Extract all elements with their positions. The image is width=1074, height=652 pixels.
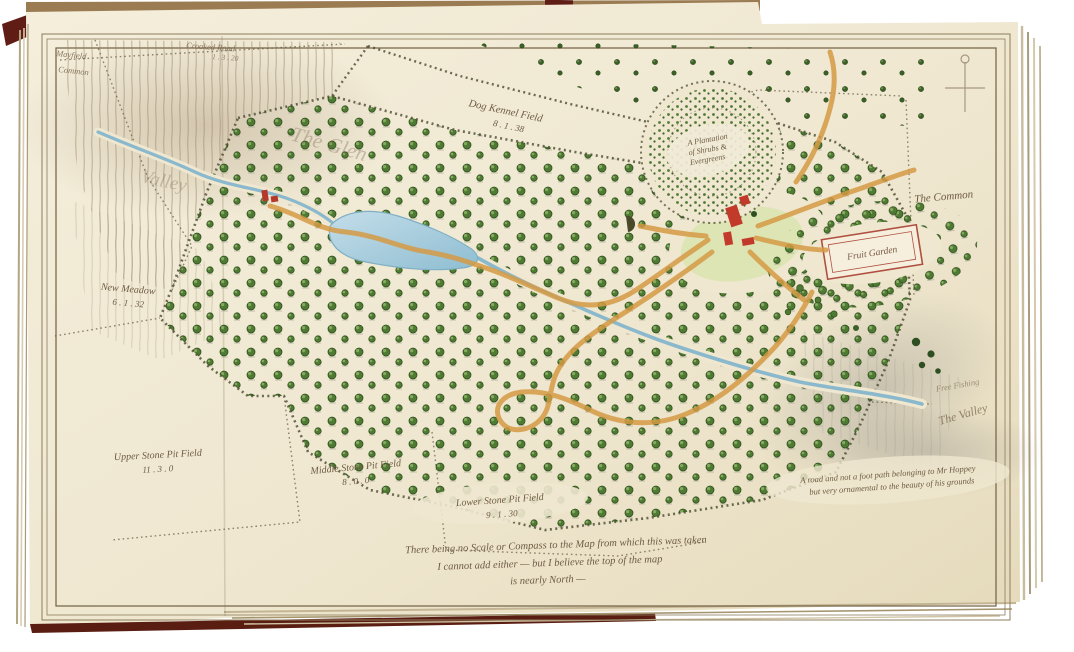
plantation-circle: A Plantation of Shrubs & Evergreens [641, 81, 783, 223]
page-edges-right [1022, 26, 1024, 600]
map-canvas: A Plantation of Shrubs & Evergreens Frui… [0, 0, 1074, 652]
label-crooked-road-acreage: 1 . 3 . 20 [212, 52, 239, 63]
page-edge-line [1034, 38, 1036, 588]
page-edge-line [1040, 46, 1042, 582]
estate-map-photograph: A Plantation of Shrubs & Evergreens Frui… [0, 0, 1074, 652]
label-upper-stone-pit-acreage: 11 . 3 . 0 [142, 463, 174, 475]
page-edge-line [1028, 32, 1030, 594]
